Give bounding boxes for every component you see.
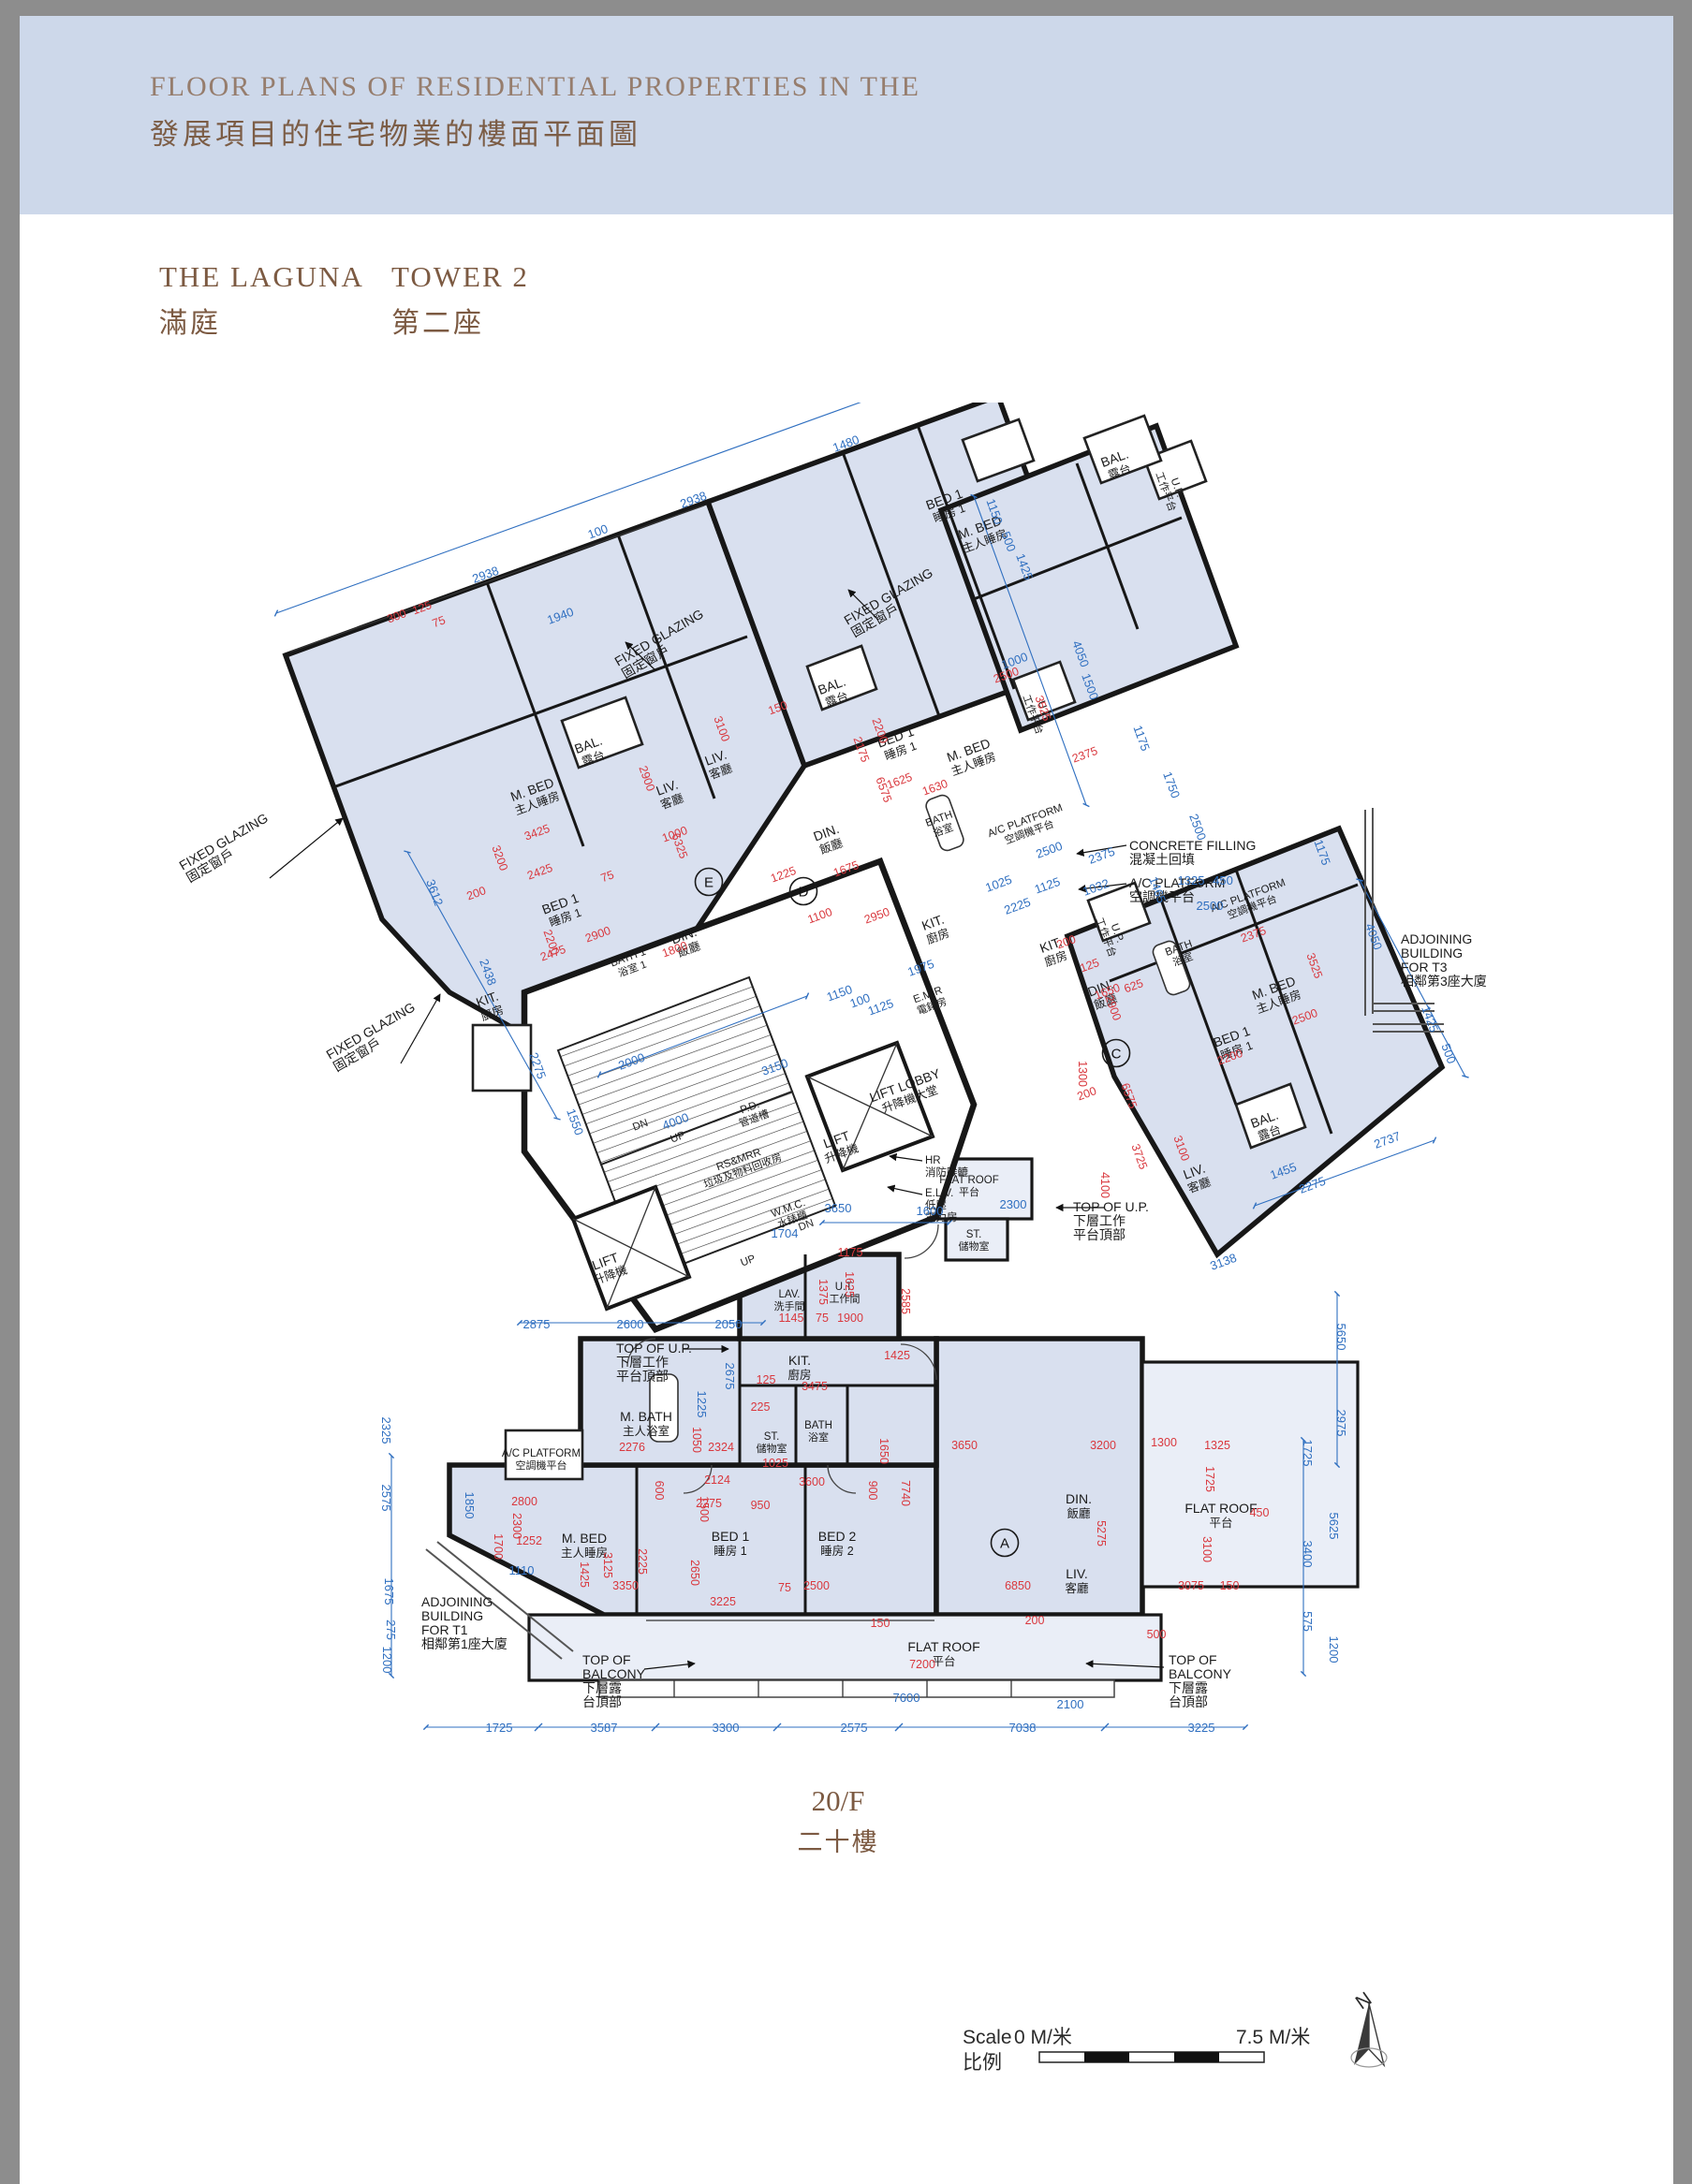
- room-label: KIT.廚房: [920, 912, 951, 947]
- floor-label: 20/F 二十樓: [768, 1784, 908, 1858]
- room-label: M. BED主人睡房: [944, 735, 998, 778]
- dimension-blue: 1225: [695, 1391, 709, 1418]
- dimension-red: 1500: [698, 1496, 711, 1522]
- dimension-blue: 2325: [379, 1417, 393, 1444]
- dimension-blue: 2575: [379, 1485, 393, 1512]
- dimension-blue: 3225: [1188, 1721, 1215, 1735]
- page-title-en: FLOOR PLANS OF RESIDENTIAL PROPERTIES IN…: [150, 71, 920, 103]
- dimension-blue: 2225: [1002, 895, 1032, 917]
- room-label: LIV.客廳: [1065, 1566, 1089, 1595]
- callout-label: ADJOININGBUILDINGFOR T3相鄰第3座大廈: [1401, 931, 1487, 989]
- svg-text:C: C: [1111, 1047, 1122, 1063]
- dimension-blue: 3300: [713, 1721, 740, 1735]
- dimension-red: 3225: [710, 1595, 736, 1608]
- dimension-blue: 1025: [983, 872, 1013, 895]
- callout-label: FIXED GLAZING固定窗戶: [324, 999, 425, 1074]
- dimension-blue: 1200: [1327, 1636, 1341, 1664]
- dimension-red: 200: [1075, 1084, 1097, 1103]
- dimension-red: 6850: [1005, 1579, 1031, 1592]
- dimension-blue: 2100: [1057, 1697, 1084, 1711]
- dimension-blue: 1110: [509, 1563, 535, 1577]
- svg-text:D: D: [799, 885, 809, 901]
- dimension-red: 200: [1025, 1614, 1045, 1627]
- dimension-blue: 2675: [723, 1363, 737, 1390]
- page-title-zh: 發展項目的住宅物業的樓面平面圖: [150, 110, 641, 153]
- dimension-blue: 2300: [1000, 1197, 1027, 1211]
- callout-label: TOP OFBALCONY下層露台頂部: [1169, 1652, 1232, 1709]
- dimension-red: 1145: [779, 1312, 804, 1325]
- dimension-red: 600: [653, 1481, 666, 1501]
- dimension-red: 125: [757, 1373, 776, 1386]
- dimension-red: 2124: [704, 1473, 730, 1487]
- dimension-blue: 2600: [617, 1317, 644, 1331]
- dimension-red: 1900: [837, 1312, 863, 1325]
- dimension-blue: 5625: [1327, 1513, 1341, 1540]
- scale-bar: [1039, 2052, 1264, 2062]
- dimension-blue: 3650: [825, 1201, 852, 1215]
- dimension-red: 3125: [601, 1552, 614, 1578]
- svg-text:E: E: [704, 875, 714, 891]
- dimension-blue: 1725: [1301, 1440, 1315, 1467]
- dimension-red: 3100: [1200, 1536, 1214, 1562]
- dimension-red: 7200: [909, 1658, 935, 1671]
- dimension-red: 2585: [899, 1288, 912, 1314]
- dimension-red: 1425: [884, 1349, 910, 1362]
- room-label: BATH浴室: [804, 1420, 832, 1444]
- dimension-blue: 450: [1213, 873, 1233, 887]
- dimension-red: 1725: [1203, 1466, 1216, 1492]
- dimension-red: 3600: [799, 1475, 825, 1488]
- dimension-red: 2324: [708, 1441, 734, 1454]
- project-name-en: THE LAGUNA: [159, 260, 364, 294]
- dimension-red: 1650: [877, 1438, 890, 1464]
- scale-and-north: Scale 比例 0 M/米 7.5 M/米 N: [936, 1966, 1554, 2162]
- dimension-blue: 2500: [1034, 839, 1064, 861]
- room-label: DIN.飯廳: [1066, 1491, 1092, 1520]
- dimension-red: 150: [1220, 1579, 1240, 1592]
- dimension-red: 75: [778, 1581, 791, 1594]
- dimension-red: 150: [871, 1617, 890, 1630]
- tower-label-en: TOWER 2: [391, 260, 529, 294]
- dimension-blue: 7600: [893, 1691, 920, 1705]
- dimension-blue: 2500: [1197, 899, 1224, 913]
- dimension-blue: 2375: [1086, 844, 1116, 867]
- balcony-strip: [599, 1680, 1114, 1697]
- floor-label-zh: 二十樓: [768, 1822, 908, 1858]
- scale-min-label: 0 M/米: [1014, 2027, 1072, 2048]
- dimension-blue: 7038: [1009, 1721, 1037, 1735]
- dimension-red: 3350: [612, 1579, 639, 1592]
- dimension-blue: 2737: [1372, 1129, 1402, 1151]
- dimension-red: 1630: [920, 777, 949, 799]
- project-name-block: THE LAGUNA 滿庭: [159, 260, 364, 341]
- screenshot-root: FLOOR PLANS OF RESIDENTIAL PROPERTIES IN…: [0, 0, 1692, 2184]
- room-label: M. BED主人睡房: [561, 1531, 608, 1560]
- dimension-blue: 1750: [1160, 770, 1183, 799]
- dimension-blue: 1325: [1178, 873, 1205, 887]
- dimension-red: 500: [1147, 1628, 1167, 1641]
- dimension-red: 2276: [619, 1441, 645, 1454]
- flat-roof-right: [1142, 1362, 1358, 1587]
- dimension-blue: 1725: [486, 1721, 513, 1735]
- project-name-zh: 滿庭: [159, 300, 364, 341]
- dimension-blue: 2575: [841, 1721, 868, 1735]
- dimension-red: 1375: [817, 1279, 830, 1305]
- dimension-red: 1700: [492, 1533, 505, 1560]
- unit-a-living: [936, 1339, 1142, 1615]
- dimension-red: 1025: [762, 1457, 788, 1470]
- dimension-blue: 3400: [1301, 1541, 1315, 1568]
- dimension-blue: 3138: [1208, 1251, 1238, 1273]
- dimension-red: 1252: [516, 1534, 542, 1547]
- dimension-blue: 3587: [591, 1721, 618, 1735]
- dimension-red: 2500: [803, 1579, 830, 1592]
- dimension-red: 2650: [688, 1560, 701, 1586]
- dimension-red: 2225: [636, 1548, 649, 1575]
- dimension-red: 1050: [690, 1427, 703, 1453]
- room-label: KIT.廚房: [787, 1353, 811, 1382]
- dimension-red: 5275: [1095, 1520, 1108, 1546]
- callout-label: FIXED GLAZING固定窗戶: [177, 810, 278, 885]
- dimension-blue: 575: [1301, 1611, 1315, 1632]
- scale-label-en: Scale: [963, 2027, 1012, 2048]
- ac-platform-box: [473, 1025, 531, 1091]
- floor-plan-drawing: M. BED主人睡房BAL.露台LIV.客廳BED 1睡房 1BATH 1浴室 …: [140, 403, 1545, 1807]
- plan-walls: [286, 403, 1442, 1697]
- dimension-red: 3200: [1090, 1439, 1116, 1452]
- dimension-red: 75: [816, 1312, 829, 1325]
- dimension-red: 225: [751, 1400, 771, 1414]
- dimension-blue: 5650: [1334, 1324, 1348, 1351]
- tower-label-zh: 第二座: [391, 300, 529, 341]
- dimension-red: 3650: [951, 1439, 978, 1452]
- callout-label: ADJOININGBUILDINGFOR T1相鄰第1座大廈: [421, 1594, 508, 1651]
- dimension-red: 1425: [578, 1561, 591, 1588]
- dimension-blue: 1850: [463, 1492, 477, 1519]
- svg-text:A: A: [1000, 1536, 1009, 1552]
- callout-label: CONCRETE FILLING混凝土回填: [1129, 838, 1256, 867]
- dimension-blue: 2050: [715, 1317, 743, 1331]
- scale-max-label: 7.5 M/米: [1236, 2027, 1310, 2048]
- dimension-blue: 1175: [1130, 724, 1153, 753]
- dimension-red: 1300: [1151, 1436, 1177, 1449]
- tower-block: TOWER 2 第二座: [391, 260, 529, 341]
- dimension-red: 1325: [1204, 1439, 1230, 1452]
- room-label: M. BATH主人浴室: [620, 1409, 672, 1438]
- room-label: DIN.飯廳: [811, 821, 846, 857]
- north-arrow-icon: N: [1351, 1988, 1387, 2067]
- dimension-red: 4100: [1098, 1172, 1111, 1198]
- dimension-red: 900: [866, 1481, 879, 1501]
- dimension-blue: 2975: [1334, 1410, 1348, 1437]
- scale-label-zh: 比例: [963, 2052, 1002, 2074]
- dimension-blue: 2875: [523, 1317, 551, 1331]
- dimension-red: 1175: [838, 1246, 863, 1259]
- dimension-blue: 1704: [772, 1226, 799, 1240]
- dimension-blue: 1675: [382, 1578, 396, 1605]
- dimension-red: 2375: [1070, 744, 1099, 766]
- floor-label-en: 20/F: [768, 1784, 908, 1818]
- dimension-red: 2800: [511, 1495, 537, 1508]
- dimension-red: 3075: [1178, 1579, 1204, 1592]
- room-label: BED 1睡房 1: [712, 1529, 750, 1558]
- dimension-blue: 1600: [917, 1204, 944, 1218]
- room-label: BED 2睡房 2: [818, 1529, 857, 1558]
- dimension-blue: 1200: [380, 1647, 394, 1674]
- dimension-red: 950: [751, 1499, 771, 1512]
- dimension-red: 1625: [843, 1271, 856, 1297]
- dimension-red: 1625: [885, 770, 914, 792]
- dimension-blue: 1125: [1033, 874, 1062, 897]
- dimension-red: 7740: [899, 1480, 912, 1506]
- dimension-blue: 275: [384, 1620, 398, 1640]
- callout-label: TOP OF U.P.下層工作平台頂部: [1073, 1199, 1149, 1242]
- dimension-red: 1300: [1076, 1061, 1089, 1087]
- north-letter: N: [1352, 1988, 1376, 2015]
- dimension-red: 3475: [802, 1380, 828, 1393]
- dimension-red: 3725: [1128, 1142, 1150, 1171]
- dimension-red: 450: [1250, 1506, 1270, 1519]
